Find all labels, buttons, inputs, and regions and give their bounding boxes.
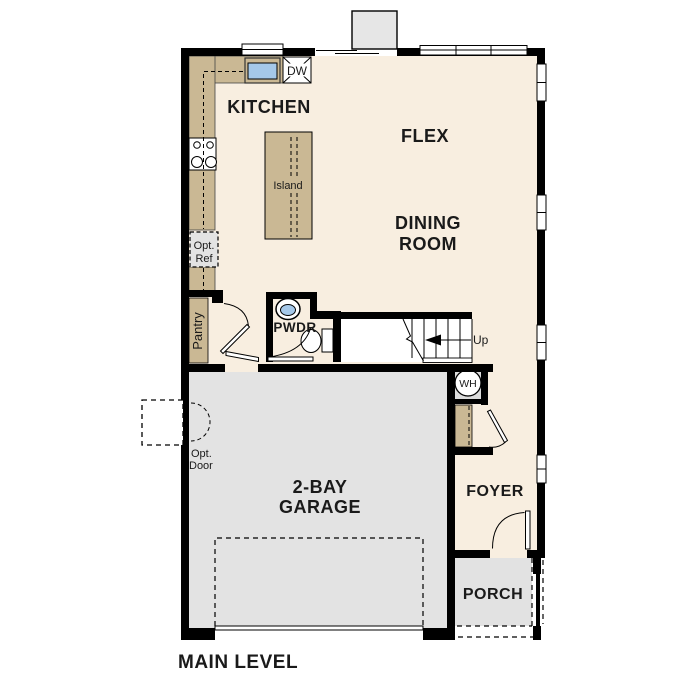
up-label: Up <box>473 333 489 347</box>
wall-hall-bottom-left <box>181 364 225 372</box>
powder-label: PWDR <box>273 320 316 335</box>
garage-label-1: 2-BAY <box>293 477 348 497</box>
wall-closet-bottom <box>447 447 493 455</box>
opt-ref-label-2: Ref <box>195 253 213 265</box>
wall-front-left <box>447 550 490 558</box>
foyer-window <box>537 455 546 483</box>
coat-closet <box>455 405 472 447</box>
flex-window-triple <box>420 46 527 56</box>
plan-title: MAIN LEVEL <box>178 652 298 673</box>
porch-right-bar <box>536 558 540 640</box>
garage-door <box>215 626 423 630</box>
wall-pwdr-left <box>266 292 273 362</box>
wall-pwdr-top <box>266 292 317 299</box>
wall-stair-left <box>333 312 341 362</box>
pantry: Pantry <box>189 298 208 363</box>
opt-ref-label-1: Opt. <box>194 240 215 252</box>
stairs <box>341 319 472 363</box>
wall-front-right <box>527 550 541 558</box>
kitchen-island: Island <box>265 132 312 239</box>
wall-hall-bottom-right <box>258 364 493 372</box>
kitchen-sink <box>248 63 277 79</box>
right-window-3 <box>537 325 546 360</box>
dishwasher: DW <box>283 57 311 83</box>
toilet-tank <box>322 329 333 352</box>
water-heater-label: WH <box>459 378 477 390</box>
pedestal-sink-basin <box>281 305 296 316</box>
opt-door-label-1: Opt. <box>191 448 212 460</box>
opt-ref: Opt. Ref <box>190 232 218 267</box>
wall-wh-bottom <box>452 399 488 404</box>
foyer-label: FOYER <box>466 483 524 500</box>
opt-door-stoop <box>142 400 183 445</box>
wall-block-bottom-right <box>423 628 455 640</box>
chimney <box>352 11 397 49</box>
wall-stub <box>212 290 223 303</box>
right-window-2 <box>537 195 546 230</box>
island-label: Island <box>273 180 302 192</box>
garage-label-2: GARAGE <box>279 497 361 517</box>
wall-wh-right <box>481 364 488 405</box>
opt-door-label-2: Door <box>189 460 213 472</box>
kitchen-window <box>242 44 283 55</box>
wall-garage-right <box>447 364 455 640</box>
kitchen-label: KITCHEN <box>227 97 311 117</box>
dishwasher-label: DW <box>287 64 308 78</box>
pantry-label: Pantry <box>190 312 205 350</box>
wall-left <box>181 48 189 640</box>
floor-plan-main-level: DW Opt. Ref Pantry Island WH <box>0 0 687 687</box>
wall-block-bottom-left <box>181 628 215 640</box>
porch-label: PORCH <box>463 586 523 603</box>
dining-label-1: DINING <box>395 213 461 233</box>
dining-label-2: ROOM <box>399 234 457 254</box>
flex-label: FLEX <box>401 126 449 146</box>
right-window-1 <box>537 64 546 101</box>
wall-stair-top <box>333 312 472 319</box>
